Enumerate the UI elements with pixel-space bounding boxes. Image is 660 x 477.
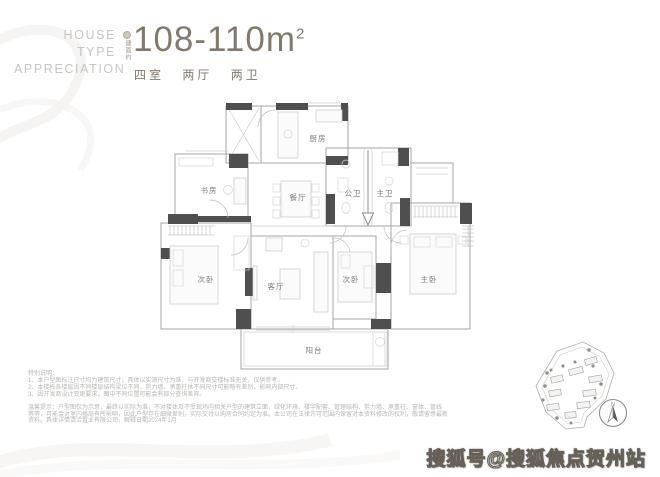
room-label-bedroom3: 次卧 xyxy=(343,274,360,284)
title-line-3: APPRECIATION xyxy=(14,61,116,78)
area-prefix: 建面约 xyxy=(122,31,132,61)
title-line-1: HOUSE xyxy=(14,27,116,44)
disclaimer: 特别说明： 1、本户型图标注尺寸均为建筑尺寸，具体以实测尺寸为准，与开发商交楼标… xyxy=(28,371,483,425)
room-label-kitchen: 厨房 xyxy=(310,133,327,143)
area-prefix-label: 建面约 xyxy=(123,40,131,61)
room-label-bedroom2: 次卧 xyxy=(198,274,215,284)
disclaimer-paragraph-line-3: 资料。具体详情请洽置业有限公司，解释日期2024年1月 xyxy=(28,418,483,425)
page-title-english: HOUSE TYPE APPRECIATION xyxy=(14,27,116,78)
room-label-balcony: 阳台 xyxy=(306,345,323,355)
disclaimer-note-1: 1、本户型图标注尺寸均为建筑尺寸，具体以实测尺寸为准，与开发商交楼标准无关，仅供… xyxy=(28,378,483,385)
watermark: 搜狐号@搜狐焦点贺州站 xyxy=(426,444,646,471)
disclaimer-heading: 特别说明： xyxy=(28,371,483,378)
title-line-2: TYPE xyxy=(14,44,116,61)
area-sup: 2 xyxy=(296,25,305,42)
area-number: 108-110m xyxy=(133,20,296,59)
disclaimer-paragraph-line-1: 温馨提示：户型图仅为示意，最终以实际为准，不对楼体及不受现场内相关户型的建筑立面… xyxy=(28,405,483,412)
floorplan-page: HOUSE TYPE APPRECIATION 建面约 108-110m2 四室… xyxy=(0,0,660,477)
disclaimer-note-2: 2、本楼栋各楼层因不同楼层结构梁位不同，剪力墙、承重柱体不同尺寸可能略有差别，影… xyxy=(28,385,483,392)
room-label-study: 书房 xyxy=(201,185,218,195)
floorplan-furniture xyxy=(170,110,466,366)
room-label-living: 客厅 xyxy=(268,281,285,291)
spec-baths: 两卫 xyxy=(231,68,261,82)
disclaimer-note-3: 3、因开发商设计变更要求，图中不同位置可能会有部分查询差异。 xyxy=(28,392,483,399)
room-label-guest-bath: 公卫 xyxy=(345,189,362,198)
spec-halls: 两厅 xyxy=(182,68,212,82)
spec-rooms: 四室 xyxy=(134,68,164,82)
compass-icon: N xyxy=(596,396,630,430)
room-label-master-bath: 主卫 xyxy=(377,188,394,198)
area-prefix-dot-icon xyxy=(123,31,131,39)
spec-row: 四室 两厅 两卫 xyxy=(134,66,273,83)
floorplan-window-hatches xyxy=(168,103,474,246)
room-label-dining: 餐厅 xyxy=(290,193,307,202)
area-value: 108-110m2 xyxy=(133,20,305,60)
floorplan-drawing: 书房 厨房 餐厅 公卫 主卫 次卧 客厅 次卧 主卧 阳台 xyxy=(148,86,500,376)
room-label-master-bedroom: 主卧 xyxy=(421,274,438,284)
